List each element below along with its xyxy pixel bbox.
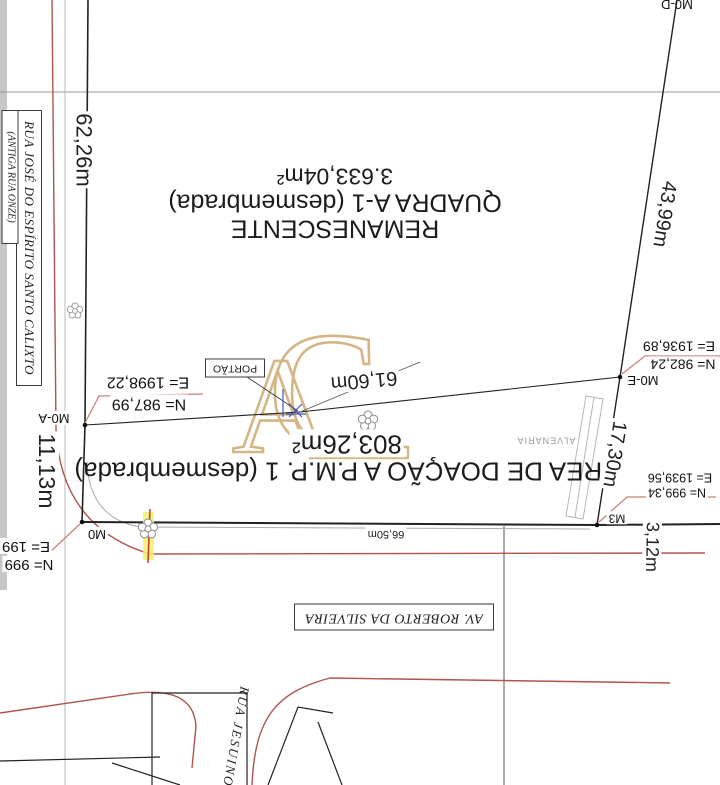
dim-southwest: 11,13m <box>35 431 59 510</box>
boundary-west <box>85 0 88 425</box>
doacao-line1: ÁREA DE DOAÇÃO A P.M.P. 1 (desmembrada) <box>74 457 619 484</box>
marker-m0a-label: M0-A <box>36 411 71 425</box>
survey-drawing-canvas: A C <box>0 0 720 785</box>
street-left-alt-box: (ANTIGA RUA ONZE) <box>2 110 19 244</box>
page-edge-band <box>0 0 7 590</box>
marker-m0e-e: E= 1936,89 <box>641 339 717 354</box>
remanescente-line2: QUADRA A-1 (desmembrada) <box>168 189 501 215</box>
avenue-box: AV. ROBERTO DA SILVEIRA <box>294 604 494 631</box>
remanescente-line1: REMANESCENTE <box>168 215 501 241</box>
remanescente-area: 3.633,04m² <box>168 165 501 189</box>
marker-m3-e: E= 1939,56 <box>646 470 714 483</box>
avenue-text: AV. ROBERTO DA SILVEIRA <box>305 610 483 625</box>
marker-m3-n: N= 999,34 <box>646 485 708 498</box>
marker-m0-e: E= 199 <box>0 538 52 554</box>
doacao-area: 803,26m² <box>290 430 404 457</box>
dim-southeast: 3,12m <box>642 520 662 574</box>
street-left-box: RUA JOSÉ DO ESPÍRITO SANTO CALIXTO <box>16 110 42 386</box>
neighbor-lot-lines <box>0 693 342 785</box>
marker-m0e-n: N= 982,24 <box>649 357 718 372</box>
marker-m0a-e: E= 1998,22 <box>105 373 191 390</box>
gate-label-text: PORTÃO <box>213 363 257 374</box>
marker-m0-label: M0 <box>86 527 108 541</box>
marker-m0e-label: M0-E <box>625 373 660 387</box>
marker-m0-n: N= 999 <box>3 556 56 572</box>
wall-label: ALVENARIA <box>517 435 576 444</box>
street-left-alt-text: (ANTIGA RUA ONZE) <box>5 131 16 222</box>
marker-m0d-label: M0-D <box>661 0 693 11</box>
marker-m3-label: M3 <box>607 512 628 525</box>
curb-jesuino-west <box>0 692 196 768</box>
marker-m0a-n: N= 987,99 <box>110 395 188 412</box>
dim-west: 62,26m <box>72 111 95 188</box>
dim-south: 66,50m <box>366 527 407 539</box>
gate-label: PORTÃO <box>205 359 265 378</box>
curb-avenue-south <box>252 678 670 785</box>
parcel-remanescente-text: REMANESCENTE QUADRA A-1 (desmembrada) 3.… <box>168 165 501 242</box>
plat-linework: A C <box>0 0 720 785</box>
street-left-text: RUA JOSÉ DO ESPÍRITO SANTO CALIXTO <box>22 121 36 375</box>
